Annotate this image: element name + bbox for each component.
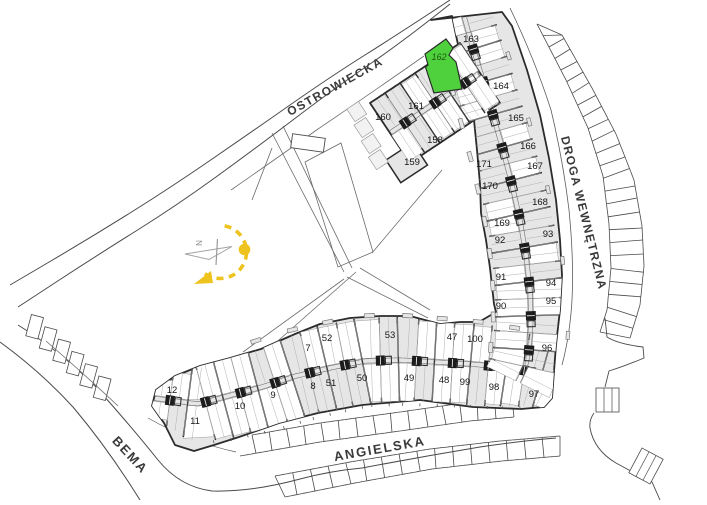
svg-text:8: 8 (310, 381, 315, 392)
svg-text:158: 158 (427, 135, 443, 146)
svg-text:169: 169 (494, 218, 510, 229)
svg-text:100: 100 (467, 334, 483, 345)
svg-text:166: 166 (520, 141, 536, 152)
svg-text:97: 97 (529, 389, 540, 400)
svg-text:168: 168 (532, 197, 548, 208)
svg-text:159: 159 (404, 157, 420, 168)
svg-text:94: 94 (546, 278, 557, 289)
svg-text:51: 51 (326, 378, 337, 389)
svg-text:52: 52 (322, 333, 333, 344)
svg-text:99: 99 (460, 377, 471, 388)
svg-text:171: 171 (476, 159, 492, 170)
svg-text:47: 47 (447, 332, 458, 343)
svg-text:170: 170 (482, 181, 498, 192)
svg-text:160: 160 (375, 112, 391, 123)
svg-text:95: 95 (546, 296, 557, 307)
svg-text:163: 163 (463, 34, 479, 45)
svg-text:7: 7 (305, 343, 310, 354)
svg-text:162: 162 (431, 52, 446, 62)
svg-text:49: 49 (404, 373, 415, 384)
svg-text:167: 167 (527, 161, 543, 172)
svg-text:50: 50 (357, 373, 368, 384)
svg-text:161: 161 (408, 101, 424, 112)
svg-text:12: 12 (167, 385, 178, 396)
svg-text:93: 93 (543, 229, 554, 240)
svg-text:98: 98 (489, 382, 500, 393)
svg-text:96: 96 (542, 343, 553, 354)
svg-text:92: 92 (495, 235, 506, 246)
svg-text:53: 53 (385, 330, 396, 341)
svg-text:10: 10 (235, 401, 246, 412)
svg-text:165: 165 (508, 113, 524, 124)
svg-text:164: 164 (493, 81, 509, 92)
svg-text:11: 11 (190, 416, 200, 427)
svg-text:48: 48 (439, 375, 450, 386)
svg-text:90: 90 (496, 301, 507, 312)
svg-text:9: 9 (270, 390, 275, 401)
svg-text:N: N (195, 240, 204, 246)
svg-text:91: 91 (496, 272, 507, 283)
